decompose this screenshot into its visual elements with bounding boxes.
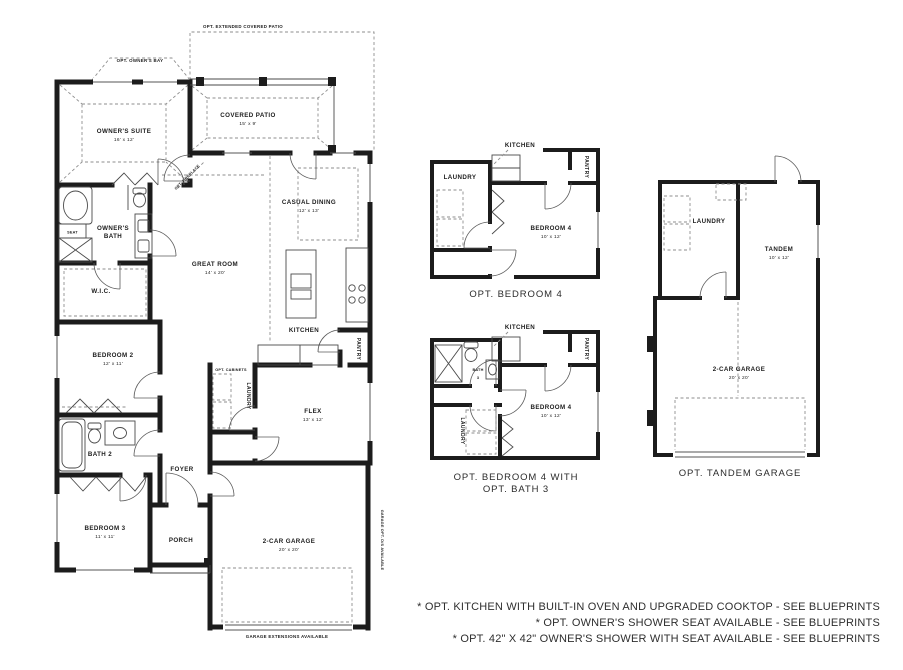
kitchen-label: KITCHEN: [289, 327, 319, 334]
floor-plan-page: OPT. EXTENDED COVERED PATIO OPT. OWNER'S…: [0, 0, 903, 670]
opt1-pantry-label: PANTRY: [583, 156, 589, 179]
seat-label: SEAT: [67, 231, 78, 235]
opt2-caption-line2: OPT. BATH 3: [483, 484, 549, 495]
bedroom3-label: BEDROOM 3: [84, 525, 125, 532]
opt3-garage-dims: 20' x 20': [729, 375, 749, 381]
bedroom2-dims: 12' x 11': [103, 361, 123, 367]
opt1-details: [437, 150, 602, 276]
opt3-tandem-dims: 10' x 12': [769, 255, 789, 261]
great-room-label: GREAT ROOM: [192, 261, 238, 268]
opt2-caption-line1: OPT. BEDROOM 4 WITH: [454, 472, 579, 483]
covered-patio-label: COVERED PATIO: [220, 112, 276, 119]
opt2-bath3-label-line2: 3: [477, 376, 479, 380]
opt2-walls: [432, 332, 598, 458]
opt-bedroom4-plan: KITCHEN LAUNDRY PANTRY BEDROOM 4 10' x 1…: [432, 142, 602, 300]
covered-patio-dims: 15' x 9': [239, 121, 256, 127]
wic-label: W.I.C.: [91, 288, 110, 295]
opt3-laundry-label: LAUNDRY: [693, 218, 726, 225]
garage-dims: 20' x 20': [279, 547, 299, 553]
patio-posts: [190, 77, 336, 566]
opt3-caption: OPT. TANDEM GARAGE: [679, 468, 801, 479]
opt3-walls: [655, 182, 818, 455]
garage-side-note: GARAGE OPT. D/S AVAILABLE: [380, 510, 384, 571]
casual-dining-dims: 12' x 13': [299, 208, 319, 214]
opt-cabinets-label: OPT. CABINETS: [215, 368, 247, 372]
opt2-bath3-label-line1: BATH: [472, 368, 483, 372]
opt2-bedroom4-label: BEDROOM 4: [530, 404, 571, 411]
bath2-label: BATH 2: [88, 451, 112, 458]
opt2-laundry-label: LAUNDRY: [459, 417, 465, 444]
opt3-tandem-label: TANDEM: [765, 246, 793, 253]
owners-suite-label: OWNER'S SUITE: [97, 128, 151, 135]
floor-plan-image: OPT. EXTENDED COVERED PATIO OPT. OWNER'S…: [0, 0, 903, 670]
flex-dims: 13' x 12': [303, 417, 323, 423]
garage-label: 2-CAR GARAGE: [263, 538, 316, 545]
kitchen-fixtures: [150, 248, 368, 573]
opt3-details: [647, 156, 822, 459]
opt1-bedroom4-dims: 10' x 12': [541, 234, 561, 240]
owners-bath-label-line2: BATH: [104, 233, 122, 240]
foyer-label: FOYER: [170, 466, 193, 473]
closet-chevrons: [66, 173, 158, 491]
owners-suite-dims: 16' x 12': [114, 137, 134, 143]
opt-extended-patio-label: OPT. EXTENDED COVERED PATIO: [203, 24, 283, 29]
room-labels: OPT. EXTENDED COVERED PATIO OPT. OWNER'S…: [67, 24, 384, 639]
owners-bath-label-line1: OWNER'S: [97, 225, 129, 232]
footnotes: * OPT. KITCHEN WITH BUILT-IN OVEN AND UP…: [417, 601, 880, 645]
opt1-laundry-label: LAUNDRY: [444, 174, 477, 181]
opt2-pantry-label: PANTRY: [583, 338, 589, 361]
opt-tandem-garage-plan: LAUNDRY TANDEM 10' x 12' 2-CAR GARAGE 20…: [647, 156, 822, 479]
bedroom2-label: BEDROOM 2: [92, 352, 133, 359]
footnote-shower-42-option: * OPT. 42" X 42" OWNER'S SHOWER WITH SEA…: [453, 633, 880, 645]
footnote-shower-seat-option: * OPT. OWNER'S SHOWER SEAT AVAILABLE - S…: [536, 617, 880, 629]
casual-dining-label: CASUAL DINING: [282, 199, 336, 206]
garage-extensions-note: GARAGE EXTENSIONS AVAILABLE: [246, 634, 328, 639]
laundry-label: LAUNDRY: [245, 382, 251, 409]
opt-owners-bay-label: OPT. OWNER'S BAY: [117, 58, 164, 63]
opt2-bedroom4-dims: 10' x 12': [541, 413, 561, 419]
porch-label: PORCH: [169, 537, 193, 544]
dashed-optional-features: [60, 32, 374, 622]
opt1-kitchen-label: KITCHEN: [505, 142, 535, 149]
flex-label: FLEX: [304, 408, 322, 415]
opt-bedroom4-bath3-plan: KITCHEN BATH 3 LAUNDRY PANTRY BEDROOM 4 …: [432, 324, 602, 495]
main-floor-plan: OPT. EXTENDED COVERED PATIO OPT. OWNER'S…: [53, 24, 384, 639]
bedroom3-dims: 11' x 11': [95, 534, 115, 540]
opt2-kitchen-label: KITCHEN: [505, 324, 535, 331]
opt3-garage-label: 2-CAR GARAGE: [713, 366, 766, 373]
opt1-caption: OPT. BEDROOM 4: [469, 289, 562, 300]
great-room-dims: 14' x 20': [205, 270, 225, 276]
footnote-kitchen-option: * OPT. KITCHEN WITH BUILT-IN OVEN AND UP…: [417, 601, 880, 613]
opt1-bedroom4-label: BEDROOM 4: [530, 225, 571, 232]
pantry-label: PANTRY: [355, 338, 361, 361]
